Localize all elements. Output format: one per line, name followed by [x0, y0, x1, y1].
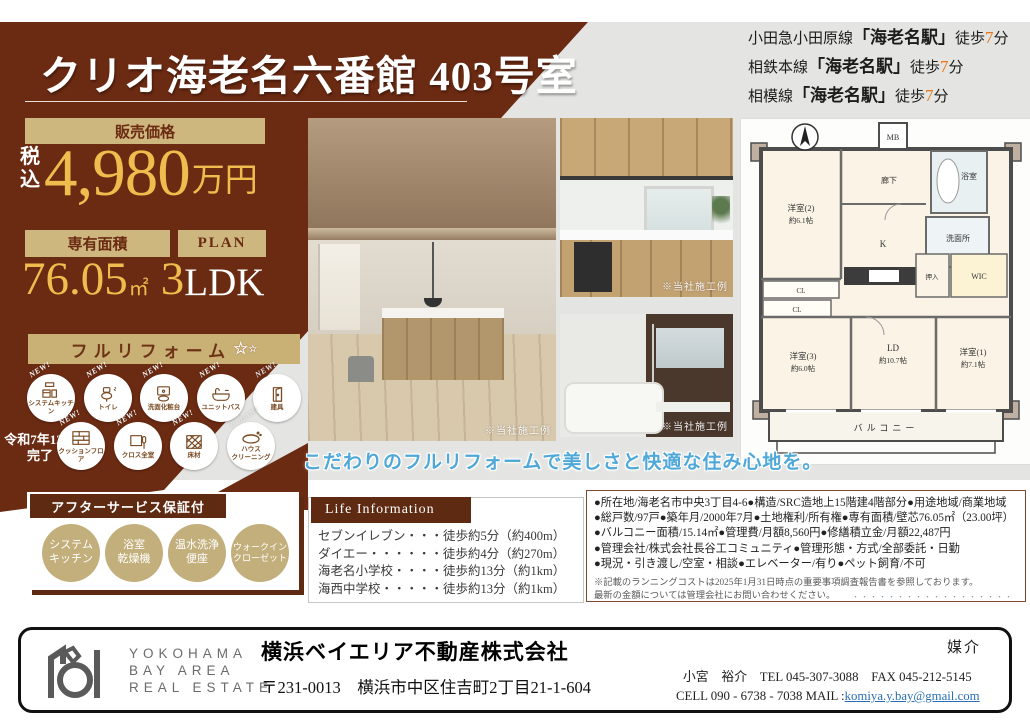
ld-label: LD — [887, 343, 899, 353]
photo-island-body — [382, 318, 504, 380]
sparkle-icon: ☆ — [248, 344, 257, 355]
after-service-item: システム キッチン — [42, 524, 100, 582]
area-value: 76.05 — [22, 256, 128, 303]
logo-circle — [60, 665, 90, 695]
detail-line: ●バルコニー面積/15.14㎡●管理費/月額8,560円●修繕積立金/月額22,… — [594, 526, 1018, 541]
door-icon — [265, 385, 289, 403]
walk-minutes: 7 — [925, 86, 934, 105]
access-line: 相模線「海老名駅」徒歩7分 — [748, 82, 1009, 111]
paint-roller-icon — [126, 433, 150, 451]
page-title: クリオ海老名六番館 403号室 — [40, 42, 578, 102]
email-link[interactable]: komiya.y.bay@gmail.com — [845, 689, 980, 703]
photo-mirror — [656, 328, 724, 368]
kitchen-label: K — [880, 239, 887, 249]
walk-label: 徒歩 — [895, 89, 925, 105]
reform-item-label: 床材 — [188, 452, 201, 459]
photo-window — [318, 244, 360, 330]
life-info-item: セブンイレブン・・・徒歩約5分（約400m） — [318, 528, 565, 546]
price-unit: 万円 — [192, 153, 258, 201]
reform-item-label: 建具 — [271, 404, 284, 411]
life-info-item: 海老名小学校・・・・徒歩約13分（約1km） — [318, 563, 565, 581]
tile-icon — [182, 433, 206, 451]
walk-label: 徒歩 — [955, 31, 985, 47]
plan-number: 3 — [161, 256, 185, 303]
reform-banner-text: フルリフォーム — [71, 337, 232, 362]
room2-size: 約6.1帖 — [789, 215, 814, 225]
price-row: 税 込 4,980 万円 — [20, 142, 310, 206]
construction-example-note: ※当社施工例 — [485, 422, 551, 437]
company-logo — [41, 642, 111, 702]
logo-top-shape — [65, 648, 79, 662]
station-name: 「海老名駅」 — [853, 28, 955, 47]
route-name: 小田急小田原線 — [748, 31, 853, 47]
after-service-label: アフターサービス保証付 — [30, 494, 226, 518]
living-room-photo: ※当社施工例 — [308, 118, 556, 441]
reform-item-label: トイレ — [98, 404, 118, 411]
tax-included-label: 税 込 — [20, 146, 40, 192]
station-access: 小田急小田原線「海老名駅」徒歩7分 相鉄本線「海老名駅」徒歩7分 相模線「海老名… — [748, 24, 1009, 111]
reform-item-door: NEW! 建具 — [253, 374, 301, 422]
plan-label: PLAN — [178, 230, 266, 257]
kitchen-sink — [869, 270, 899, 282]
property-details: ●所在地/海老名市中央3丁目4-6●構造/SRC造地上15階建4階部分●用途地域… — [594, 496, 1018, 572]
reform-item-label: ユニットバス — [202, 404, 241, 411]
reform-item-cushion-floor: NEW! クッションフロア — [57, 422, 105, 470]
logo-text-line: REAL ESTATE — [129, 679, 273, 696]
cell-contact: CELL 090 - 6738 - 7038 MAIL :komiya.y.ba… — [676, 689, 980, 704]
reform-item-wallpaper: NEW! クロス全室 — [114, 422, 162, 470]
after-service-item: 浴室 乾燥機 — [105, 524, 163, 582]
reform-item-label: ハウス クリーニング — [232, 446, 271, 461]
property-details-box: ●所在地/海老名市中央3丁目4-6●構造/SRC造地上15階建4階部分●用途地域… — [586, 490, 1026, 602]
sparkle-icon: ☆ — [233, 339, 248, 359]
room3-size: 約6.0帖 — [791, 363, 816, 373]
walk-label: 徒歩 — [910, 60, 940, 76]
room1-label: 洋室(1) — [960, 347, 987, 357]
minutes-unit: 分 — [994, 31, 1009, 47]
photo-stool — [348, 356, 374, 382]
minutes-unit: 分 — [949, 60, 964, 76]
fax-number: FAX 045-212-5145 — [871, 670, 971, 684]
access-line: 小田急小田原線「海老名駅」徒歩7分 — [748, 24, 1009, 53]
tel-number: TEL 045-307-3088 — [760, 670, 859, 684]
route-name: 相模線 — [748, 89, 793, 105]
room2-label: 洋室(2) — [788, 203, 815, 213]
area-plan-values: 76.05 ㎡ 3 LDK — [22, 256, 312, 303]
tub-shape — [937, 159, 959, 203]
photo-counter — [560, 230, 733, 240]
closet-label: CL — [793, 306, 802, 314]
reform-item-label: クッションフロア — [57, 448, 105, 463]
bath-label: 浴室 — [961, 171, 977, 181]
room3-label: 洋室(3) — [790, 351, 817, 361]
detail-line: ●所在地/海老名市中央3丁目4-6●構造/SRC造地上15階建4階部分●用途地域… — [594, 496, 1018, 511]
balcony-label: バルコニー — [854, 423, 919, 433]
toilet-icon — [96, 385, 120, 403]
company-logo-text: YOKOHAMA BAY AREA REAL ESTATE — [129, 645, 273, 696]
bathroom-photo: ※当社施工例 — [560, 314, 733, 437]
construction-example-note: ※当社施工例 — [662, 278, 728, 293]
flyer-page: クリオ海老名六番館 403号室 小田急小田原線「海老名駅」徒歩7分 相鉄本線「海… — [0, 0, 1030, 728]
access-line: 相鉄本線「海老名駅」徒歩7分 — [748, 53, 1009, 82]
logo-text-line: YOKOHAMA — [129, 645, 273, 662]
walk-minutes: 7 — [940, 57, 949, 76]
catch-copy: こだわりのフルリフォームで美しさと快適な住み心地を。 — [303, 447, 822, 474]
station-name: 「海老名駅」 — [793, 86, 895, 105]
walk-minutes: 7 — [985, 28, 994, 47]
photo-ceiling — [308, 118, 556, 240]
detail-line: ●管理会社/株式会社長谷工コミュニティ●管理形態・方式/全部委託・日勤 — [594, 542, 1018, 557]
photo-bath-counter — [656, 402, 730, 412]
company-name: 横浜ベイエリア不動産株式会社 — [261, 636, 569, 666]
logo-text-line: BAY AREA — [129, 662, 273, 679]
oshiire-label: 押入 — [926, 272, 940, 281]
wic-label: WIC — [971, 272, 987, 281]
floor-plan-drawing: MB 浴室 洗面所 洋室(2) 約6.1帖 廊下 CL CL K 押入 W — [741, 119, 1030, 464]
closet-label: CL — [797, 287, 806, 295]
life-info-header: Life Information — [311, 497, 471, 523]
photo-plant — [712, 196, 730, 230]
detail-line: ●総戸数/97戸●築年月/2000年7月●土地権利/所有権●専有面積/壁芯76.… — [594, 511, 1018, 526]
life-info-list: セブンイレブン・・・徒歩約5分（約400m） ダイエー・・・・・・徒歩約4分（約… — [318, 528, 565, 598]
ld-size: 約10.7帖 — [879, 355, 908, 365]
agent-contact: 小宮 裕介 TEL 045-307-3088 FAX 045-212-5145 — [683, 666, 972, 685]
bathtub-icon — [209, 385, 233, 403]
plan-type: LDK — [184, 263, 264, 302]
route-name: 相鉄本線 — [748, 60, 808, 76]
minutes-unit: 分 — [934, 89, 949, 105]
washroom-label: 洗面所 — [946, 233, 970, 243]
note-line: ※記載のランニングコストは2025年1月31日時点の重要事項調査報告書を参照して… — [594, 577, 1018, 590]
photo-bathtub — [564, 382, 664, 434]
price-amount: 4,980 — [44, 142, 190, 206]
meter-box-label: MB — [887, 133, 899, 142]
photo-oven — [574, 242, 612, 292]
cutoff-fine-print: ・・・・・・・・・・・・・・・・・・ — [852, 592, 1017, 602]
reform-item-house-cleaning: CLEAN! ハウス クリーニング — [227, 422, 275, 470]
photo-island-top — [382, 308, 504, 318]
kitchen-photo: ※当社施工例 — [560, 118, 733, 297]
station-name: 「海老名駅」 — [808, 57, 910, 76]
life-info-item: ダイエー・・・・・・徒歩約4分（約270m） — [318, 546, 565, 564]
photo-pendant-cord — [432, 242, 434, 300]
footer-company-box: YOKOHAMA BAY AREA REAL ESTATE 横浜ベイエリア不動産… — [18, 627, 1012, 713]
company-address: 〒231-0013 横浜市中区住吉町2丁目21-1-604 — [261, 674, 591, 698]
reform-item-flooring: NEW! 床材 — [170, 422, 218, 470]
brick-floor-icon — [69, 429, 93, 447]
washstand-icon — [152, 385, 176, 403]
reform-banner: フルリフォーム ☆ ☆ — [28, 334, 300, 364]
sponge-icon — [239, 431, 263, 445]
agent-name: 小宮 裕介 — [683, 670, 747, 684]
floor-plan: MB 浴室 洗面所 洋室(2) 約6.1帖 廊下 CL CL K 押入 W — [740, 118, 1030, 465]
detail-line: ●現況・引き渡し/空室・相談●エレベーター/有り●ペット飼育/不可 — [594, 557, 1018, 572]
title-underline — [25, 101, 467, 102]
reform-item-label: 洗面化粧台 — [148, 404, 181, 411]
room1-size: 約7.1帖 — [961, 359, 986, 369]
agency-type: 媒介 — [947, 636, 981, 657]
hallway-label: 廊下 — [881, 175, 897, 185]
life-info-item: 海西中学校・・・・・徒歩約13分（約1km） — [318, 581, 565, 599]
construction-example-note: ※当社施工例 — [662, 418, 728, 433]
mail-label: MAIL : — [806, 689, 845, 703]
after-service-item: ウォークイン クローゼット — [231, 524, 289, 582]
after-service-item: 温水洗浄 便座 — [168, 524, 226, 582]
area-unit: ㎡ — [129, 272, 149, 301]
cell-number: CELL 090 - 6738 - 7038 — [676, 689, 802, 703]
photo-upper-cabinets — [560, 118, 733, 180]
reform-item-label: クロス全室 — [122, 452, 155, 459]
kitchen-icon — [39, 381, 63, 399]
photo-kitchen-window — [644, 186, 714, 236]
